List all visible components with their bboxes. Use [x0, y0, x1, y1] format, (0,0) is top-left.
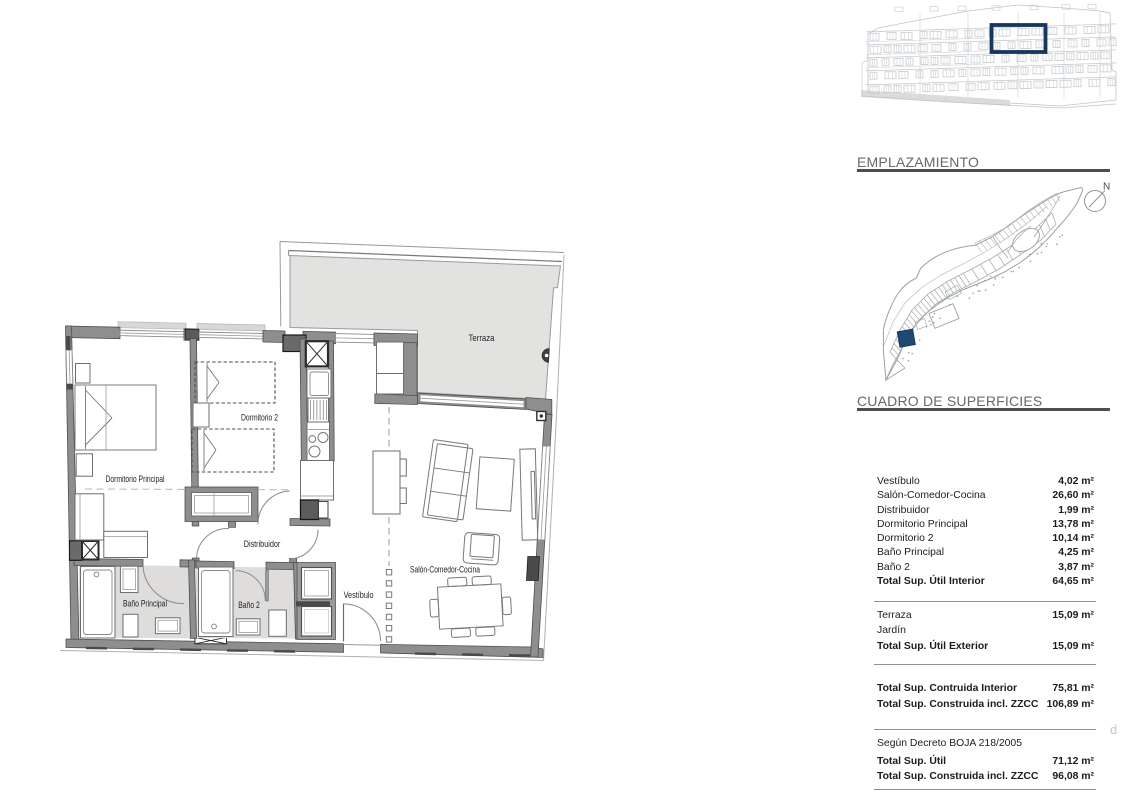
svg-text:Baño 2: Baño 2 [238, 600, 260, 610]
svg-text:Vestíbulo: Vestíbulo [344, 590, 374, 600]
svg-text:Dormitorio 2: Dormitorio 2 [241, 413, 278, 423]
svg-text:N: N [1103, 182, 1110, 193]
svg-text:Baño Principal: Baño Principal [123, 599, 167, 609]
svg-text:Salón-Comedor-Cocina: Salón-Comedor-Cocina [410, 565, 481, 575]
svg-text:Dormitorio Principal: Dormitorio Principal [106, 474, 165, 484]
svg-text:Distribuidor: Distribuidor [244, 539, 281, 549]
